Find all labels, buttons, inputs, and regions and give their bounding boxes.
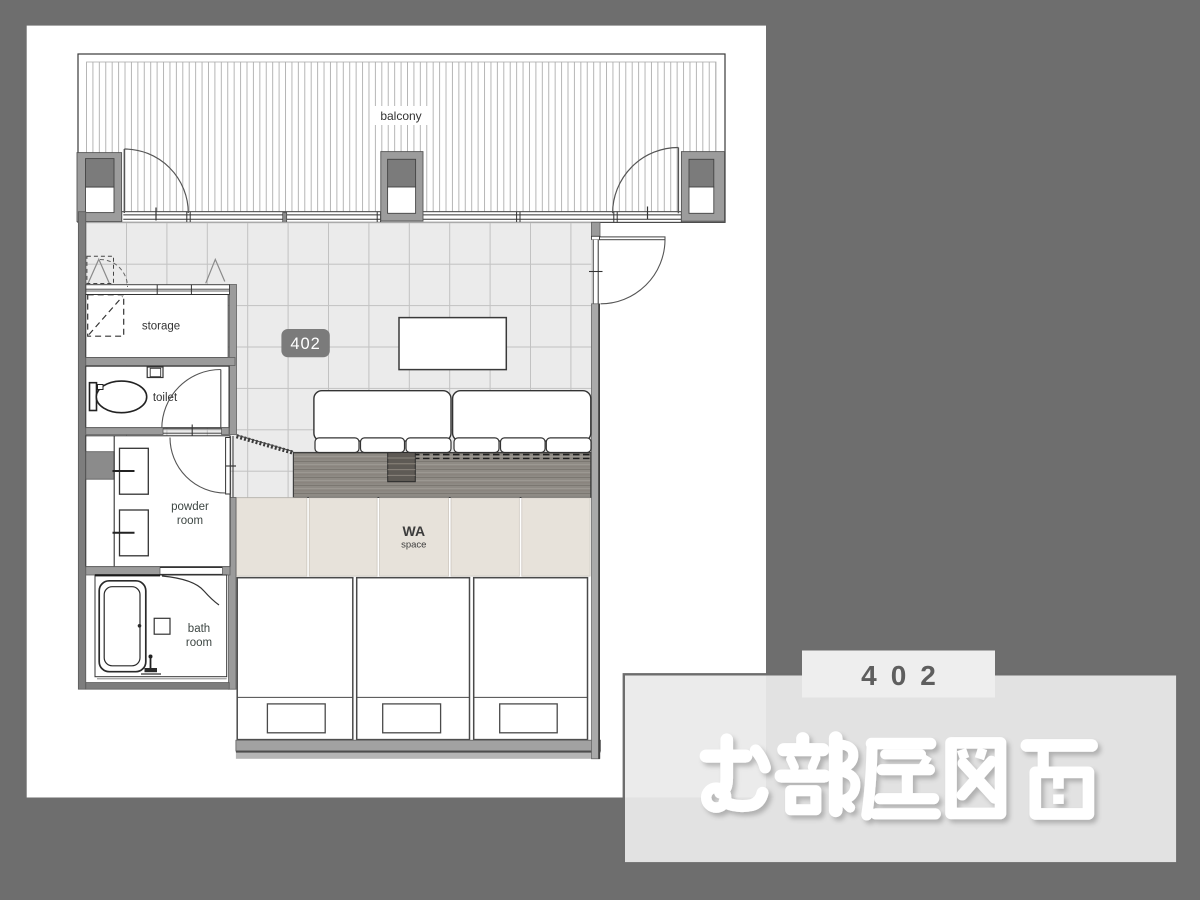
svg-text:space: space <box>401 540 426 551</box>
svg-text:storage: storage <box>142 321 180 333</box>
svg-text:402: 402 <box>290 335 321 353</box>
svg-text:WA: WA <box>403 523 426 539</box>
svg-text:402: 402 <box>861 660 950 691</box>
svg-text:toilet: toilet <box>153 392 178 404</box>
svg-text:balcony: balcony <box>380 109 421 123</box>
svg-text:powder: powder <box>171 501 209 513</box>
svg-text:room: room <box>186 637 212 649</box>
svg-text:room: room <box>177 515 203 527</box>
svg-text:bath: bath <box>188 623 210 635</box>
